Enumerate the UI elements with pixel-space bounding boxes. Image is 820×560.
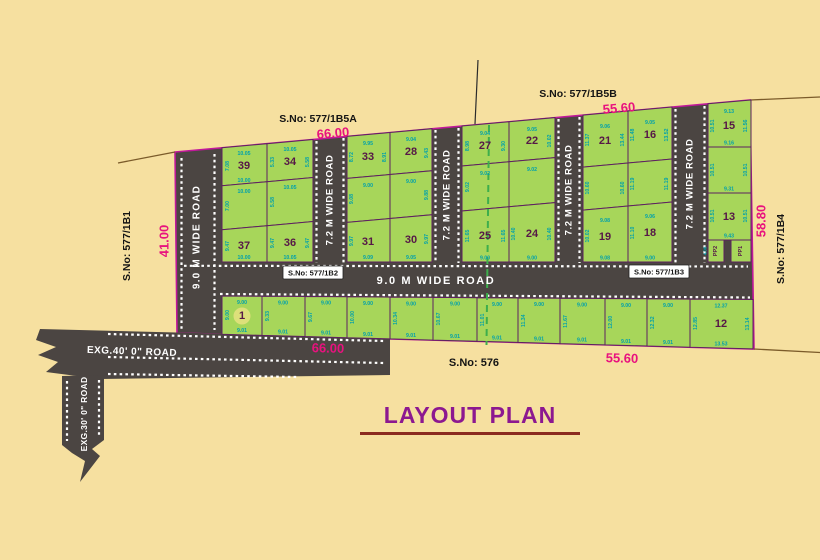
plot-dim: 9.05 bbox=[527, 127, 537, 133]
plot-dim: 9.00 bbox=[321, 301, 331, 307]
plot-dim: 10.34 bbox=[393, 312, 399, 325]
plot-dim: 9.97 bbox=[349, 236, 355, 246]
plot-dim: 9.01 bbox=[237, 328, 247, 334]
plot-dim: 12.85 bbox=[693, 317, 699, 330]
plot-dim: 13.44 bbox=[620, 133, 626, 146]
plot-number: 33 bbox=[362, 151, 374, 163]
plot-dim: 9.02 bbox=[480, 171, 490, 177]
plot-dim: 9.01 bbox=[577, 338, 587, 344]
road-label-9m-left: 9.0 M WIDE ROAD bbox=[192, 185, 203, 289]
plot-number: 13 bbox=[723, 211, 735, 223]
plot-dim: 12.00 bbox=[608, 316, 614, 329]
sno-top-left: S.No: 577/1B5A bbox=[279, 113, 357, 125]
plot-number: 34 bbox=[284, 156, 297, 168]
plot-dim: 10.51 bbox=[710, 209, 716, 222]
road-label-72-4: 7.2 M WIDE ROAD bbox=[685, 139, 696, 230]
survey-divider-line bbox=[475, 60, 478, 124]
block-a bbox=[222, 140, 313, 263]
plot-dim: 8.72 bbox=[349, 152, 355, 162]
plot-dim: 9.05 bbox=[406, 255, 416, 261]
plot-dim: 9.95 bbox=[363, 141, 373, 147]
sno-left: S.No: 577/1B1 bbox=[121, 211, 133, 281]
plot-dim: 10.02 bbox=[585, 229, 591, 242]
plot-dim: 7.08 bbox=[225, 161, 231, 171]
plot-dim: 9.00 bbox=[363, 183, 373, 189]
plot-dim: 9.00 bbox=[534, 302, 544, 308]
plot-dim: 11.19 bbox=[664, 178, 670, 191]
plot-number: PP2 bbox=[713, 246, 719, 256]
plot-dim: 9.01 bbox=[278, 329, 288, 335]
plot-dim: 10.40 bbox=[511, 227, 517, 240]
plot-number: 12 bbox=[715, 318, 727, 330]
block-c bbox=[462, 118, 555, 262]
badge-label: S.No: 577/1B2 bbox=[288, 268, 338, 277]
plot-number: 30 bbox=[405, 234, 417, 246]
dim-right: 58.80 bbox=[754, 205, 769, 238]
plot-dim: 10.02 bbox=[547, 134, 553, 147]
plot-number: 18 bbox=[644, 227, 656, 239]
plot-dim: 9.06 bbox=[600, 124, 610, 130]
plot-dim: 9.08 bbox=[600, 256, 610, 262]
plot-number: 15 bbox=[723, 120, 735, 132]
plot-dim: 9.09 bbox=[363, 255, 373, 261]
plot-dim: 9.00 bbox=[663, 303, 673, 309]
dim-top-left: 66.00 bbox=[316, 124, 350, 142]
plot-dim: 9.88 bbox=[424, 190, 430, 200]
plot-dim: 11.01 bbox=[480, 314, 486, 327]
plot-dim: 9.01 bbox=[534, 337, 544, 343]
plot-dim: 10.00 bbox=[238, 189, 251, 195]
sno-bottom: S.No: 576 bbox=[449, 357, 499, 369]
plot-dim: 8.91 bbox=[382, 152, 388, 162]
plot-dim: 11.65 bbox=[501, 230, 507, 243]
layout-plan-canvas: 39 34 37 36 33 28 31 30 27 22 25 24 21 1… bbox=[0, 0, 820, 560]
plot-dim: 9.97 bbox=[424, 234, 430, 244]
road-label-9m-horizontal: 9.0 M WIDE ROAD bbox=[377, 275, 496, 287]
plot-dim: 5.33 bbox=[270, 157, 276, 167]
plot-dim: 13.53 bbox=[715, 342, 728, 348]
sno-top-right: S.No: 577/1B5B bbox=[539, 88, 617, 100]
plot-dim: 9.01 bbox=[450, 334, 460, 340]
plot-dim: 9.43 bbox=[724, 234, 734, 240]
plot-dim: 10.05 bbox=[284, 255, 297, 261]
plot-dim: 9.31 bbox=[724, 187, 734, 193]
plot-dim: 9.67 bbox=[308, 312, 314, 322]
plot-number: 27 bbox=[479, 140, 491, 152]
plot-dim: 9.43 bbox=[424, 148, 430, 158]
dim-left: 41.00 bbox=[157, 225, 172, 258]
plot-dim: 10.05 bbox=[284, 147, 297, 153]
plot-dim: 9.00 bbox=[527, 256, 537, 262]
plot-dim: 11.34 bbox=[521, 314, 527, 327]
plot-number: 24 bbox=[526, 228, 539, 240]
plot-dim: 9.04 bbox=[406, 137, 416, 143]
plot-dim: 11.65 bbox=[465, 230, 471, 243]
plot-dim: 9.00 bbox=[577, 303, 587, 309]
plot-number: 25 bbox=[479, 230, 491, 242]
layout-plan-drawing: 39 34 37 36 33 28 31 30 27 22 25 24 21 1… bbox=[0, 0, 820, 560]
plot-dim: 5.58 bbox=[305, 157, 311, 167]
plot-dim: 13.52 bbox=[664, 128, 670, 141]
plot-dim: 9.00 bbox=[406, 301, 416, 307]
plot-dim: 11.10 bbox=[630, 227, 636, 240]
plot-number: 21 bbox=[599, 135, 611, 147]
road-label-exg30: EXG.30' 0" ROAD bbox=[79, 377, 89, 452]
plot-dim: 9.00 bbox=[480, 256, 490, 262]
plot-dim: 9.33 bbox=[265, 311, 271, 321]
plot-dim: 11.37 bbox=[585, 134, 591, 147]
plot-dim: 9.00 bbox=[363, 301, 373, 307]
plot-dim: 10.05 bbox=[238, 151, 251, 157]
block-b bbox=[347, 129, 432, 262]
plot-dim: 10.40 bbox=[547, 227, 553, 240]
plot-dim: 5.58 bbox=[270, 197, 276, 207]
plot-number: 1 bbox=[239, 310, 245, 322]
plot-dim: 13.14 bbox=[745, 317, 751, 330]
plot-dim: 9.01 bbox=[492, 335, 502, 341]
plot-dim: 9.13 bbox=[724, 109, 734, 115]
plot-dim: 11.56 bbox=[743, 120, 749, 133]
plot-dim: 9.00 bbox=[450, 302, 460, 308]
plot-dim: 10.51 bbox=[710, 119, 716, 132]
plot-number: PP1 bbox=[738, 246, 744, 256]
block-d bbox=[583, 107, 672, 262]
road-label-72-3: 7.2 M WIDE ROAD bbox=[564, 145, 575, 236]
badge-sno-577-1b2: S.No: 577/1B2 bbox=[283, 266, 343, 279]
plot-number: 19 bbox=[599, 231, 611, 243]
plot-dim: 9.02 bbox=[465, 182, 471, 192]
plot-dim: 9.30 bbox=[501, 141, 507, 151]
plot-dim: 11.19 bbox=[630, 178, 636, 191]
plot-dim: 9.47 bbox=[225, 241, 231, 251]
plot-dim: 10.00 bbox=[238, 178, 251, 184]
road-label-72-2: 7.2 M WIDE ROAD bbox=[442, 150, 453, 241]
plot-dim: 9.47 bbox=[270, 238, 276, 248]
plot-dim: 10.00 bbox=[238, 255, 251, 261]
dim-top-right: 55.60 bbox=[602, 99, 636, 117]
plot-number: 22 bbox=[526, 135, 538, 147]
plot-dim: 10.05 bbox=[284, 185, 297, 191]
plot-dim: 9.05 bbox=[645, 120, 655, 126]
boundary-extension-top-right bbox=[750, 97, 820, 100]
sno-right: S.No: 577/1B4 bbox=[775, 214, 787, 284]
plot-dim: 10.51 bbox=[743, 163, 749, 176]
plot-number: 28 bbox=[405, 146, 417, 158]
plot-dim: 9.08 bbox=[349, 194, 355, 204]
boundary-extension-bottom-right bbox=[754, 349, 820, 353]
plot-dim: 9.01 bbox=[406, 333, 416, 339]
plot-dim: 9.00 bbox=[492, 302, 502, 308]
road-label-72-1: 7.2 M WIDE ROAD bbox=[325, 155, 336, 246]
plot-dim: 10.60 bbox=[620, 181, 626, 194]
boundary-extension-left bbox=[118, 152, 175, 163]
plot-dim: 9.01 bbox=[363, 332, 373, 338]
plot-dim: 9.16 bbox=[724, 141, 734, 147]
dim-bottom-left: 66.00 bbox=[312, 340, 345, 356]
plot-number: 36 bbox=[284, 237, 296, 249]
plot-dim: 9.47 bbox=[305, 238, 311, 248]
plot-dim: 7.00 bbox=[225, 201, 231, 211]
plot-dim: 4.00 bbox=[703, 246, 708, 255]
plot-dim: 9.02 bbox=[527, 167, 537, 173]
plot-dim: 11.67 bbox=[563, 315, 569, 328]
plot-dim: 9.08 bbox=[600, 218, 610, 224]
plot-dim: 9.00 bbox=[645, 256, 655, 262]
plot-dim: 9.00 bbox=[278, 300, 288, 306]
plot-dim: 9.00 bbox=[621, 303, 631, 309]
layout-plan-title: LAYOUT PLAN bbox=[360, 402, 580, 435]
plot-dim: 10.67 bbox=[436, 312, 442, 325]
plot-dim: 9.06 bbox=[645, 214, 655, 220]
plot-dim: 9.00 bbox=[406, 179, 416, 185]
badge-sno-577-1b3: S.No: 577/1B3 bbox=[629, 265, 689, 278]
plot-dim: 10.51 bbox=[710, 163, 716, 176]
plot-number: 39 bbox=[238, 160, 250, 172]
plot-number: 31 bbox=[362, 236, 374, 248]
plot-dim: 9.00 bbox=[225, 310, 231, 320]
plot-dim: 9.04 bbox=[480, 131, 490, 137]
plot-dim: 10.51 bbox=[743, 209, 749, 222]
plot-unmarked bbox=[509, 158, 555, 207]
plot-dim: 9.01 bbox=[621, 339, 631, 345]
plot-number: 16 bbox=[644, 129, 656, 141]
plot-dim: 10.00 bbox=[350, 311, 356, 324]
plot-dim: 12.32 bbox=[650, 316, 656, 329]
plot-dim: 12.37 bbox=[715, 304, 728, 310]
plot-dim: 10.60 bbox=[585, 181, 591, 194]
plot-dim: 9.00 bbox=[237, 300, 247, 306]
plot-dim: 9.01 bbox=[321, 331, 331, 337]
plot-dim: 8.98 bbox=[465, 141, 471, 151]
plot-dim: 9.01 bbox=[663, 340, 673, 346]
plot-dim: 11.48 bbox=[630, 129, 636, 142]
dim-bottom-right: 55.60 bbox=[606, 350, 639, 366]
plot-number: 37 bbox=[238, 240, 250, 252]
badge-label: S.No: 577/1B3 bbox=[634, 267, 684, 276]
